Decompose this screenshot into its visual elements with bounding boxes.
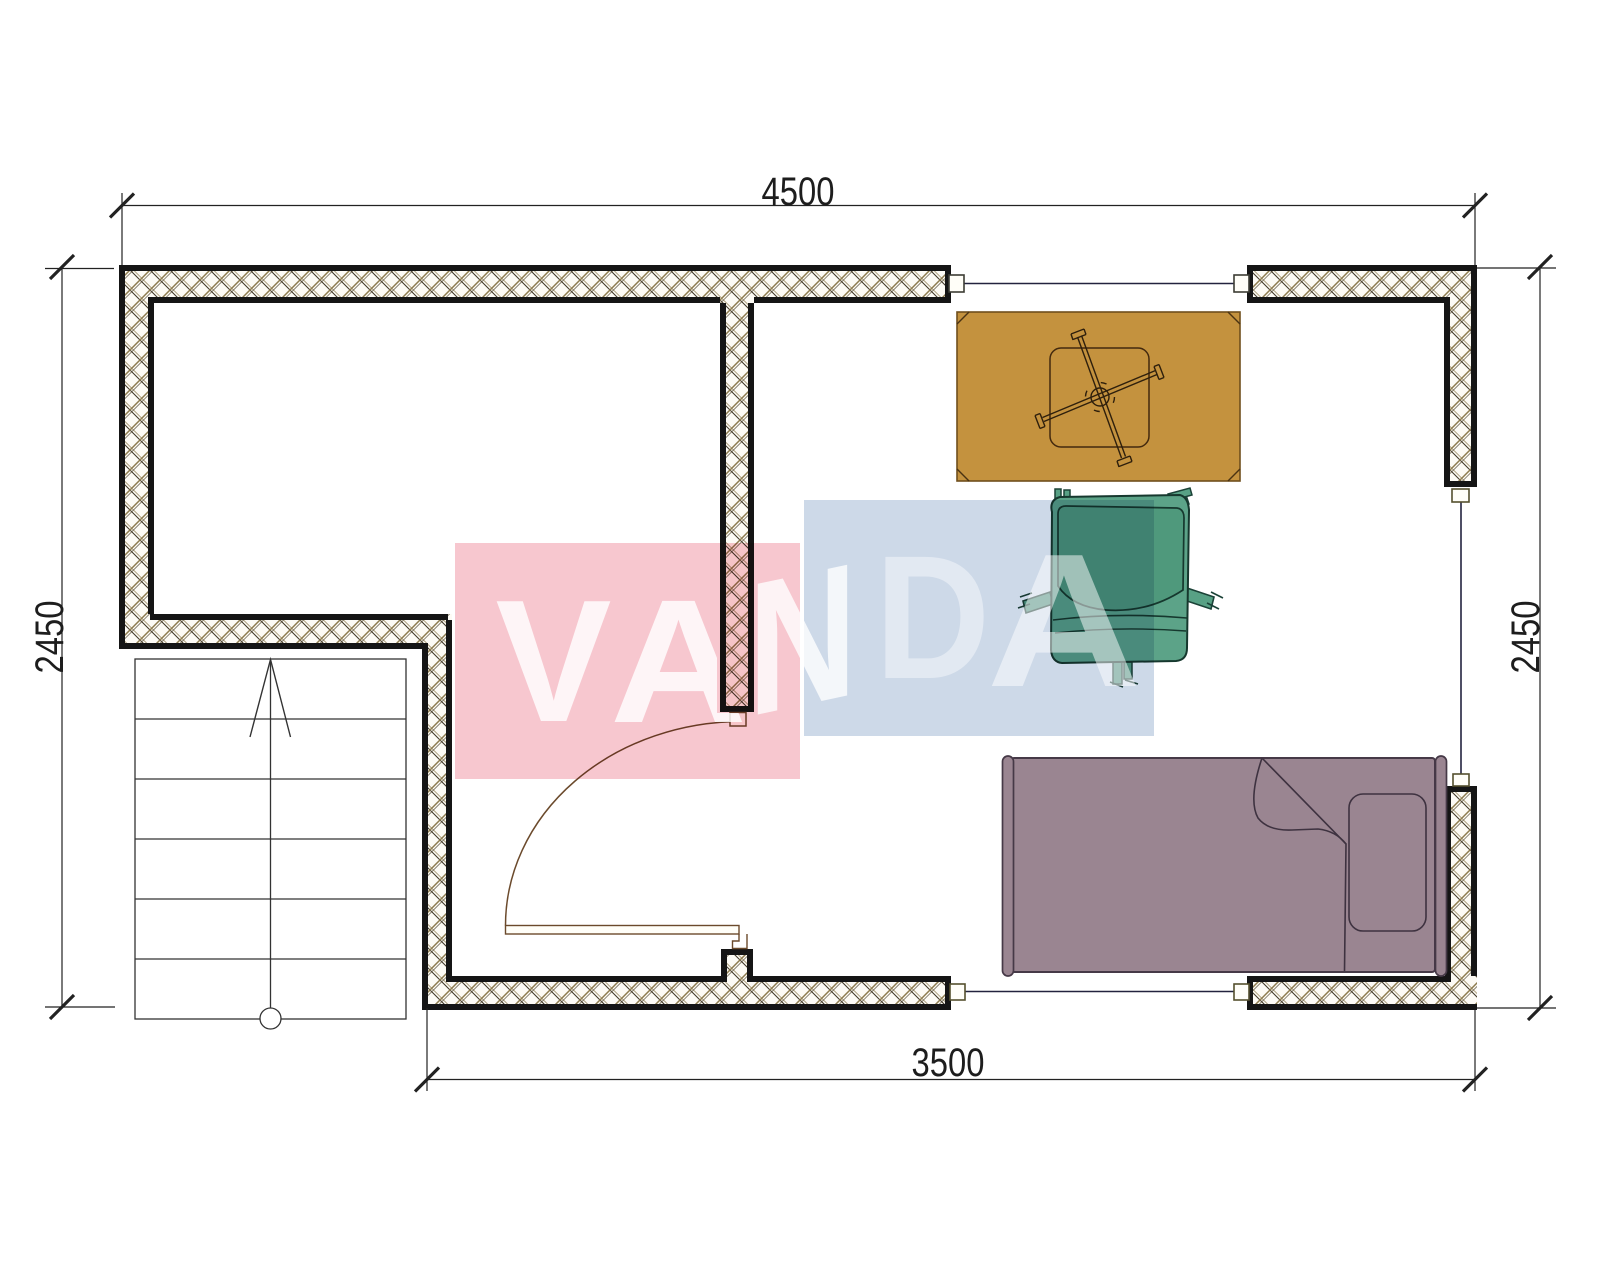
svg-text:D: D: [875, 519, 991, 716]
svg-text:4500: 4500: [762, 169, 835, 214]
svg-text:V: V: [495, 563, 611, 758]
svg-text:N: N: [748, 521, 858, 757]
svg-text:A: A: [986, 514, 1141, 727]
svg-text:3500: 3500: [912, 1040, 985, 1085]
svg-text:2450: 2450: [1503, 601, 1548, 674]
svg-text:2450: 2450: [27, 601, 72, 674]
